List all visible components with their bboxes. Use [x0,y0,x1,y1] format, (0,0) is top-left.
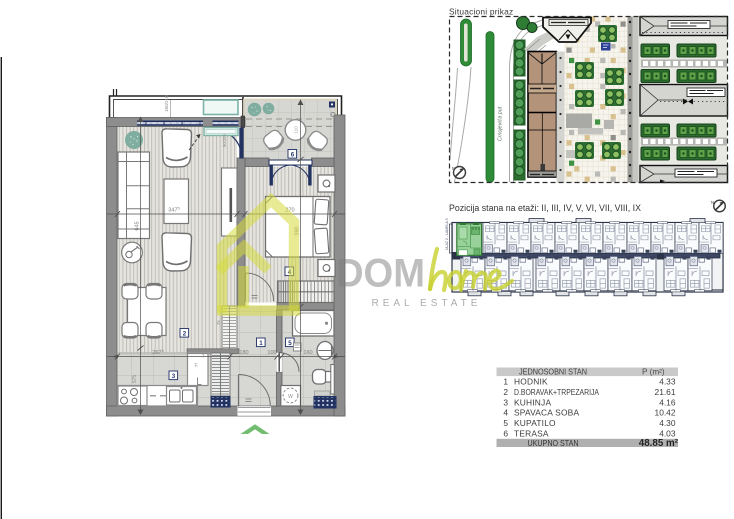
svg-text:4.03: 4.03 [659,429,676,439]
svg-text:110: 110 [294,126,300,134]
svg-text:90/205: 90/205 [222,134,227,147]
svg-text:4.33: 4.33 [659,377,676,387]
svg-text:2: 2 [183,331,187,338]
svg-text:100: 100 [267,350,276,356]
svg-text:W: W [288,394,293,400]
svg-text:4.16: 4.16 [659,397,676,407]
svg-text:JEDNOSOBNI STAN: JEDNOSOBNI STAN [519,367,587,377]
svg-text:Pozicija stana na etaži: II, I: Pozicija stana na etaži: II, III, IV, V,… [449,203,641,213]
svg-text:2: 2 [503,387,508,397]
svg-text:REAL ESTATE: REAL ESTATE [372,298,482,309]
svg-text:HODNIK: HODNIK [514,377,548,387]
svg-text:21.61: 21.61 [655,387,676,397]
svg-text:4.30: 4.30 [659,418,676,428]
svg-text:KUPATILO: KUPATILO [514,418,556,428]
svg-text:D.BORAVAK+TRPEZARIJA: D.BORAVAK+TRPEZARIJA [514,387,599,397]
svg-text:7: 7 [202,354,205,359]
svg-text:180: 180 [239,350,248,356]
svg-text:10.42: 10.42 [655,408,676,418]
svg-text:6: 6 [503,429,508,439]
svg-text:160/210: 160/210 [164,95,169,112]
svg-text:Crnojevića put: Crnojevića put [498,106,504,141]
svg-text:575: 575 [132,375,138,384]
svg-text:UKUPNO STAN: UKUPNO STAN [528,438,579,448]
svg-text:160: 160 [303,350,312,356]
svg-text:3: 3 [503,397,508,407]
svg-text:P (m²): P (m²) [642,368,665,377]
svg-text:SPAVACA SOBA: SPAVACA SOBA [514,408,579,418]
svg-text:F.: F. [195,363,199,369]
svg-text:1: 1 [259,340,263,347]
svg-text:6: 6 [291,152,295,159]
svg-text:5: 5 [503,418,508,428]
svg-text:3: 3 [172,373,176,380]
svg-text:N: N [711,200,714,205]
svg-text:ULAZ 2 - LAMELA 3: ULAZ 2 - LAMELA 3 [445,218,449,250]
svg-text:25: 25 [216,320,221,325]
svg-text:1: 1 [503,377,508,387]
svg-text:KUHINJA: KUHINJA [514,397,551,407]
svg-text:DOM: DOM [336,252,425,296]
svg-text:645: 645 [135,221,141,230]
svg-text:5: 5 [288,340,292,347]
svg-text:Situacioni prikaz: Situacioni prikaz [449,7,513,17]
svg-text:4: 4 [503,408,508,418]
svg-text:48.85 m²: 48.85 m² [639,438,679,449]
svg-text:N: N [452,166,455,171]
